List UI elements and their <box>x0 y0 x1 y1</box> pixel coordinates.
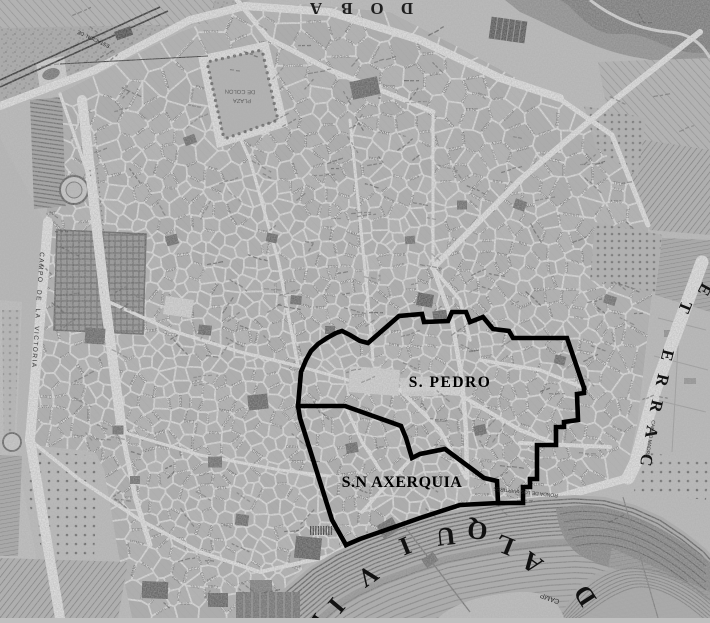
svg-text:D: D <box>401 0 413 18</box>
svg-text:Q: Q <box>466 515 488 545</box>
svg-text:O: O <box>370 0 383 18</box>
svg-text:S.N AXERQUIA: S.N AXERQUIA <box>342 474 463 491</box>
svg-text:U: U <box>435 521 457 552</box>
svg-text:B: B <box>341 0 352 18</box>
svg-text:S. PEDRO: S. PEDRO <box>409 374 492 391</box>
svg-text:A: A <box>309 0 322 18</box>
